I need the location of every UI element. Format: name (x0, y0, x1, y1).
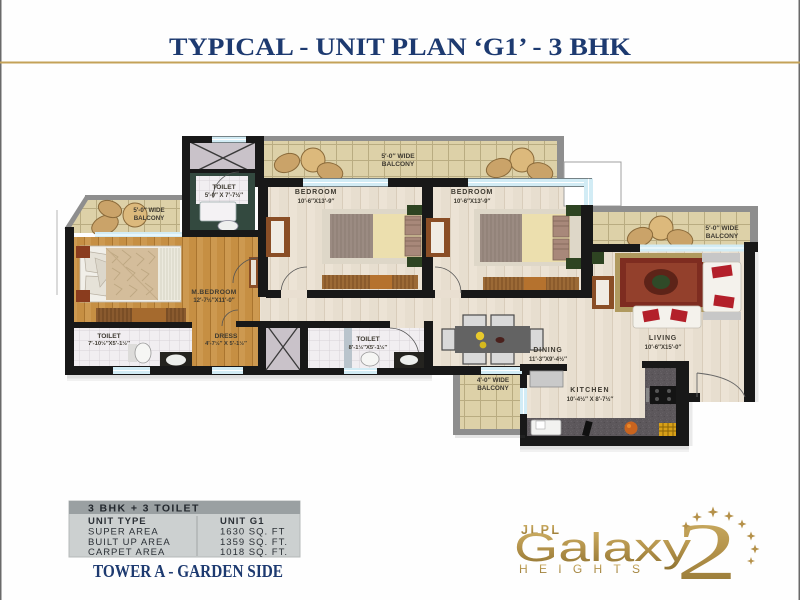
svg-text:UNIT G1: UNIT G1 (220, 516, 264, 527)
svg-text:TOILET: TOILET (356, 336, 379, 343)
svg-text:5′-0″ WIDE: 5′-0″ WIDE (705, 225, 739, 232)
svg-text:5′-0″ X 7′-7½″: 5′-0″ X 7′-7½″ (205, 192, 243, 199)
svg-text:10′-4½″ X 8′-7½″: 10′-4½″ X 8′-7½″ (567, 396, 614, 403)
svg-text:UNIT TYPE: UNIT TYPE (88, 516, 147, 527)
svg-text:10′-6″X13′-9″: 10′-6″X13′-9″ (454, 199, 491, 205)
svg-text:10′-6″X15′-0″: 10′-6″X15′-0″ (645, 345, 682, 351)
svg-text:DINING: DINING (533, 347, 562, 354)
svg-text:BEDROOM: BEDROOM (295, 189, 337, 196)
svg-text:CARPET AREA: CARPET AREA (88, 547, 165, 558)
svg-text:7′-10½″X5′-1½″: 7′-10½″X5′-1½″ (88, 340, 130, 347)
svg-text:BALCONY: BALCONY (134, 215, 165, 222)
svg-text:TOILET: TOILET (97, 333, 120, 340)
svg-text:M.BEDROOM: M.BEDROOM (191, 289, 236, 296)
svg-text:BEDROOM: BEDROOM (451, 189, 493, 196)
svg-text:3 BHK + 3 TOILET: 3 BHK + 3 TOILET (88, 503, 200, 515)
svg-text:4′-7½″ X 5′-1½″: 4′-7½″ X 5′-1½″ (205, 340, 247, 347)
svg-text:TYPICAL - UNIT PLAN ‘G1’ - 3 B: TYPICAL - UNIT PLAN ‘G1’ - 3 BHK (169, 34, 632, 61)
svg-text:SUPER AREA: SUPER AREA (88, 527, 159, 538)
svg-text:BALCONY: BALCONY (477, 385, 509, 392)
svg-text:5′-0″ WIDE: 5′-0″ WIDE (133, 207, 164, 214)
svg-text:BALCONY: BALCONY (706, 233, 739, 240)
svg-text:10′-6″X13′-9″: 10′-6″X13′-9″ (298, 199, 335, 205)
svg-text:1630 SQ. FT: 1630 SQ. FT (220, 527, 285, 538)
svg-text:TOILET: TOILET (212, 184, 235, 191)
svg-text:KITCHEN: KITCHEN (570, 387, 610, 394)
svg-text:BALCONY: BALCONY (382, 161, 415, 168)
svg-text:2: 2 (676, 506, 738, 597)
svg-text:4′-0″ WIDE: 4′-0″ WIDE (477, 377, 510, 384)
svg-text:LIVING: LIVING (649, 335, 677, 342)
svg-text:DRESS: DRESS (215, 333, 238, 340)
svg-text:TOWER A - GARDEN SIDE: TOWER A - GARDEN SIDE (93, 561, 283, 581)
svg-text:12′-7½″X11′-0″: 12′-7½″X11′-0″ (193, 297, 234, 304)
svg-text:1018 SQ. FT.: 1018 SQ. FT. (220, 547, 288, 558)
svg-text:8′-1½″X5′-1½″: 8′-1½″X5′-1½″ (349, 344, 388, 351)
svg-text:5′-0″ WIDE: 5′-0″ WIDE (381, 153, 415, 160)
svg-text:11′-3″X9′-4½″: 11′-3″X9′-4½″ (529, 356, 567, 363)
